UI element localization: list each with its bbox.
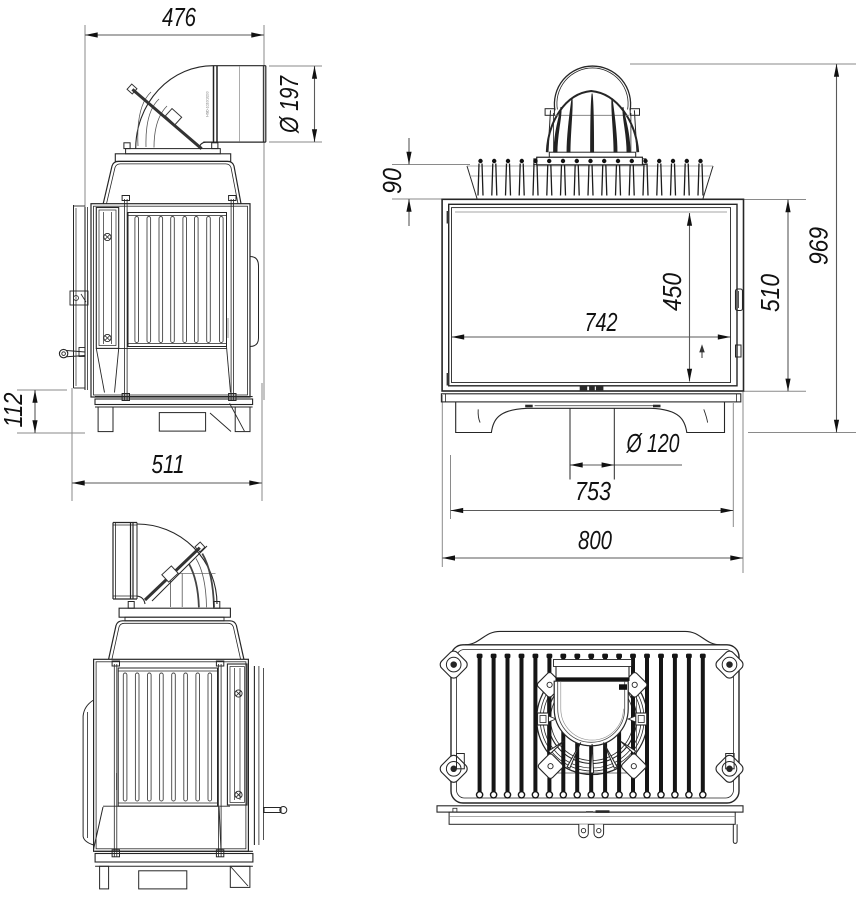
svg-text:511: 511	[152, 449, 185, 479]
svg-text:742: 742	[585, 307, 618, 337]
svg-text:800: 800	[578, 525, 612, 555]
svg-text:Ø 197: Ø 197	[274, 75, 304, 134]
svg-text:450: 450	[657, 273, 687, 311]
svg-text:969: 969	[804, 227, 834, 265]
svg-text:476: 476	[162, 2, 196, 32]
svg-text:510: 510	[755, 274, 785, 312]
svg-text:90: 90	[377, 168, 407, 194]
svg-text:112: 112	[0, 392, 28, 427]
svg-text:HSD-1020/1/200: HSD-1020/1/200	[206, 91, 210, 116]
svg-text:753: 753	[575, 476, 611, 506]
svg-text:Ø 120: Ø 120	[626, 428, 680, 458]
